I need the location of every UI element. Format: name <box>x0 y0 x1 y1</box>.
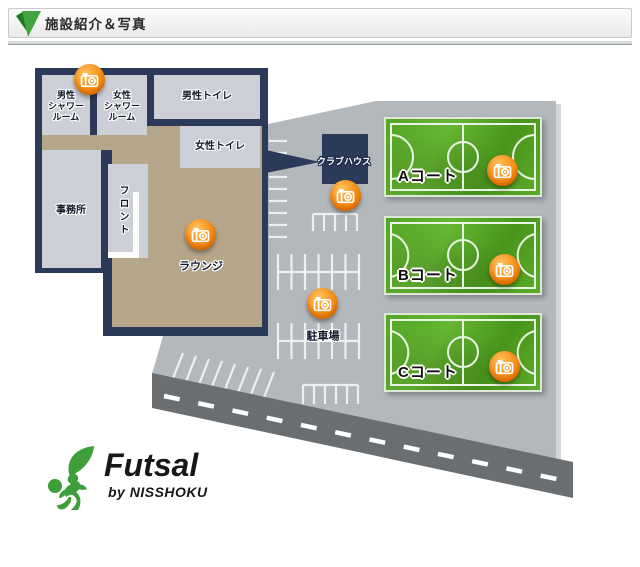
court-c-label: Cコート <box>398 361 458 382</box>
camera-icon-court-a[interactable] <box>487 155 518 186</box>
facility-map-page: 施設紹介＆写真 <box>0 0 640 567</box>
court-a: Aコート <box>384 117 542 197</box>
camera-icon-shower[interactable] <box>74 64 105 95</box>
room-label-mens-toilet: 男性トイレ <box>182 91 232 103</box>
room-label-womens-toilet: 女性トイレ <box>195 141 245 153</box>
court-c: Cコート <box>384 313 542 392</box>
camera-icon-lounge[interactable] <box>185 219 216 250</box>
front-counter <box>108 252 139 258</box>
room-label-office: 事務所 <box>56 205 86 217</box>
front-counter <box>133 192 139 258</box>
camera-icon-court-b[interactable] <box>489 254 520 285</box>
room-front-desk <box>108 164 148 258</box>
camera-icon-clubhouse[interactable] <box>330 180 361 211</box>
camera-icon-court-c[interactable] <box>489 351 520 382</box>
mascot-icon <box>44 444 100 512</box>
label-parking: 駐車場 <box>307 330 340 343</box>
logo-brand-text: Futsal <box>104 449 208 481</box>
court-b-label: Bコート <box>398 264 458 285</box>
camera-icon-parking[interactable] <box>307 288 338 319</box>
court-b: Bコート <box>384 216 542 295</box>
court-a-label: Aコート <box>398 165 458 186</box>
label-clubhouse: クラブハウス <box>317 157 371 168</box>
room-label-front-desk: フロント <box>116 185 128 237</box>
room-label-mens-shower: 男性 シャワー ルーム <box>48 90 84 122</box>
logo-byline-text: by NISSHOKU <box>108 484 208 500</box>
room-label-womens-shower: 女性 シャワー ルーム <box>104 90 140 122</box>
brand-logo: Futsal by NISSHOKU <box>44 444 208 512</box>
facility-map: Aコート Bコート <box>0 0 640 567</box>
room-label-lounge: ラウンジ <box>179 260 223 273</box>
